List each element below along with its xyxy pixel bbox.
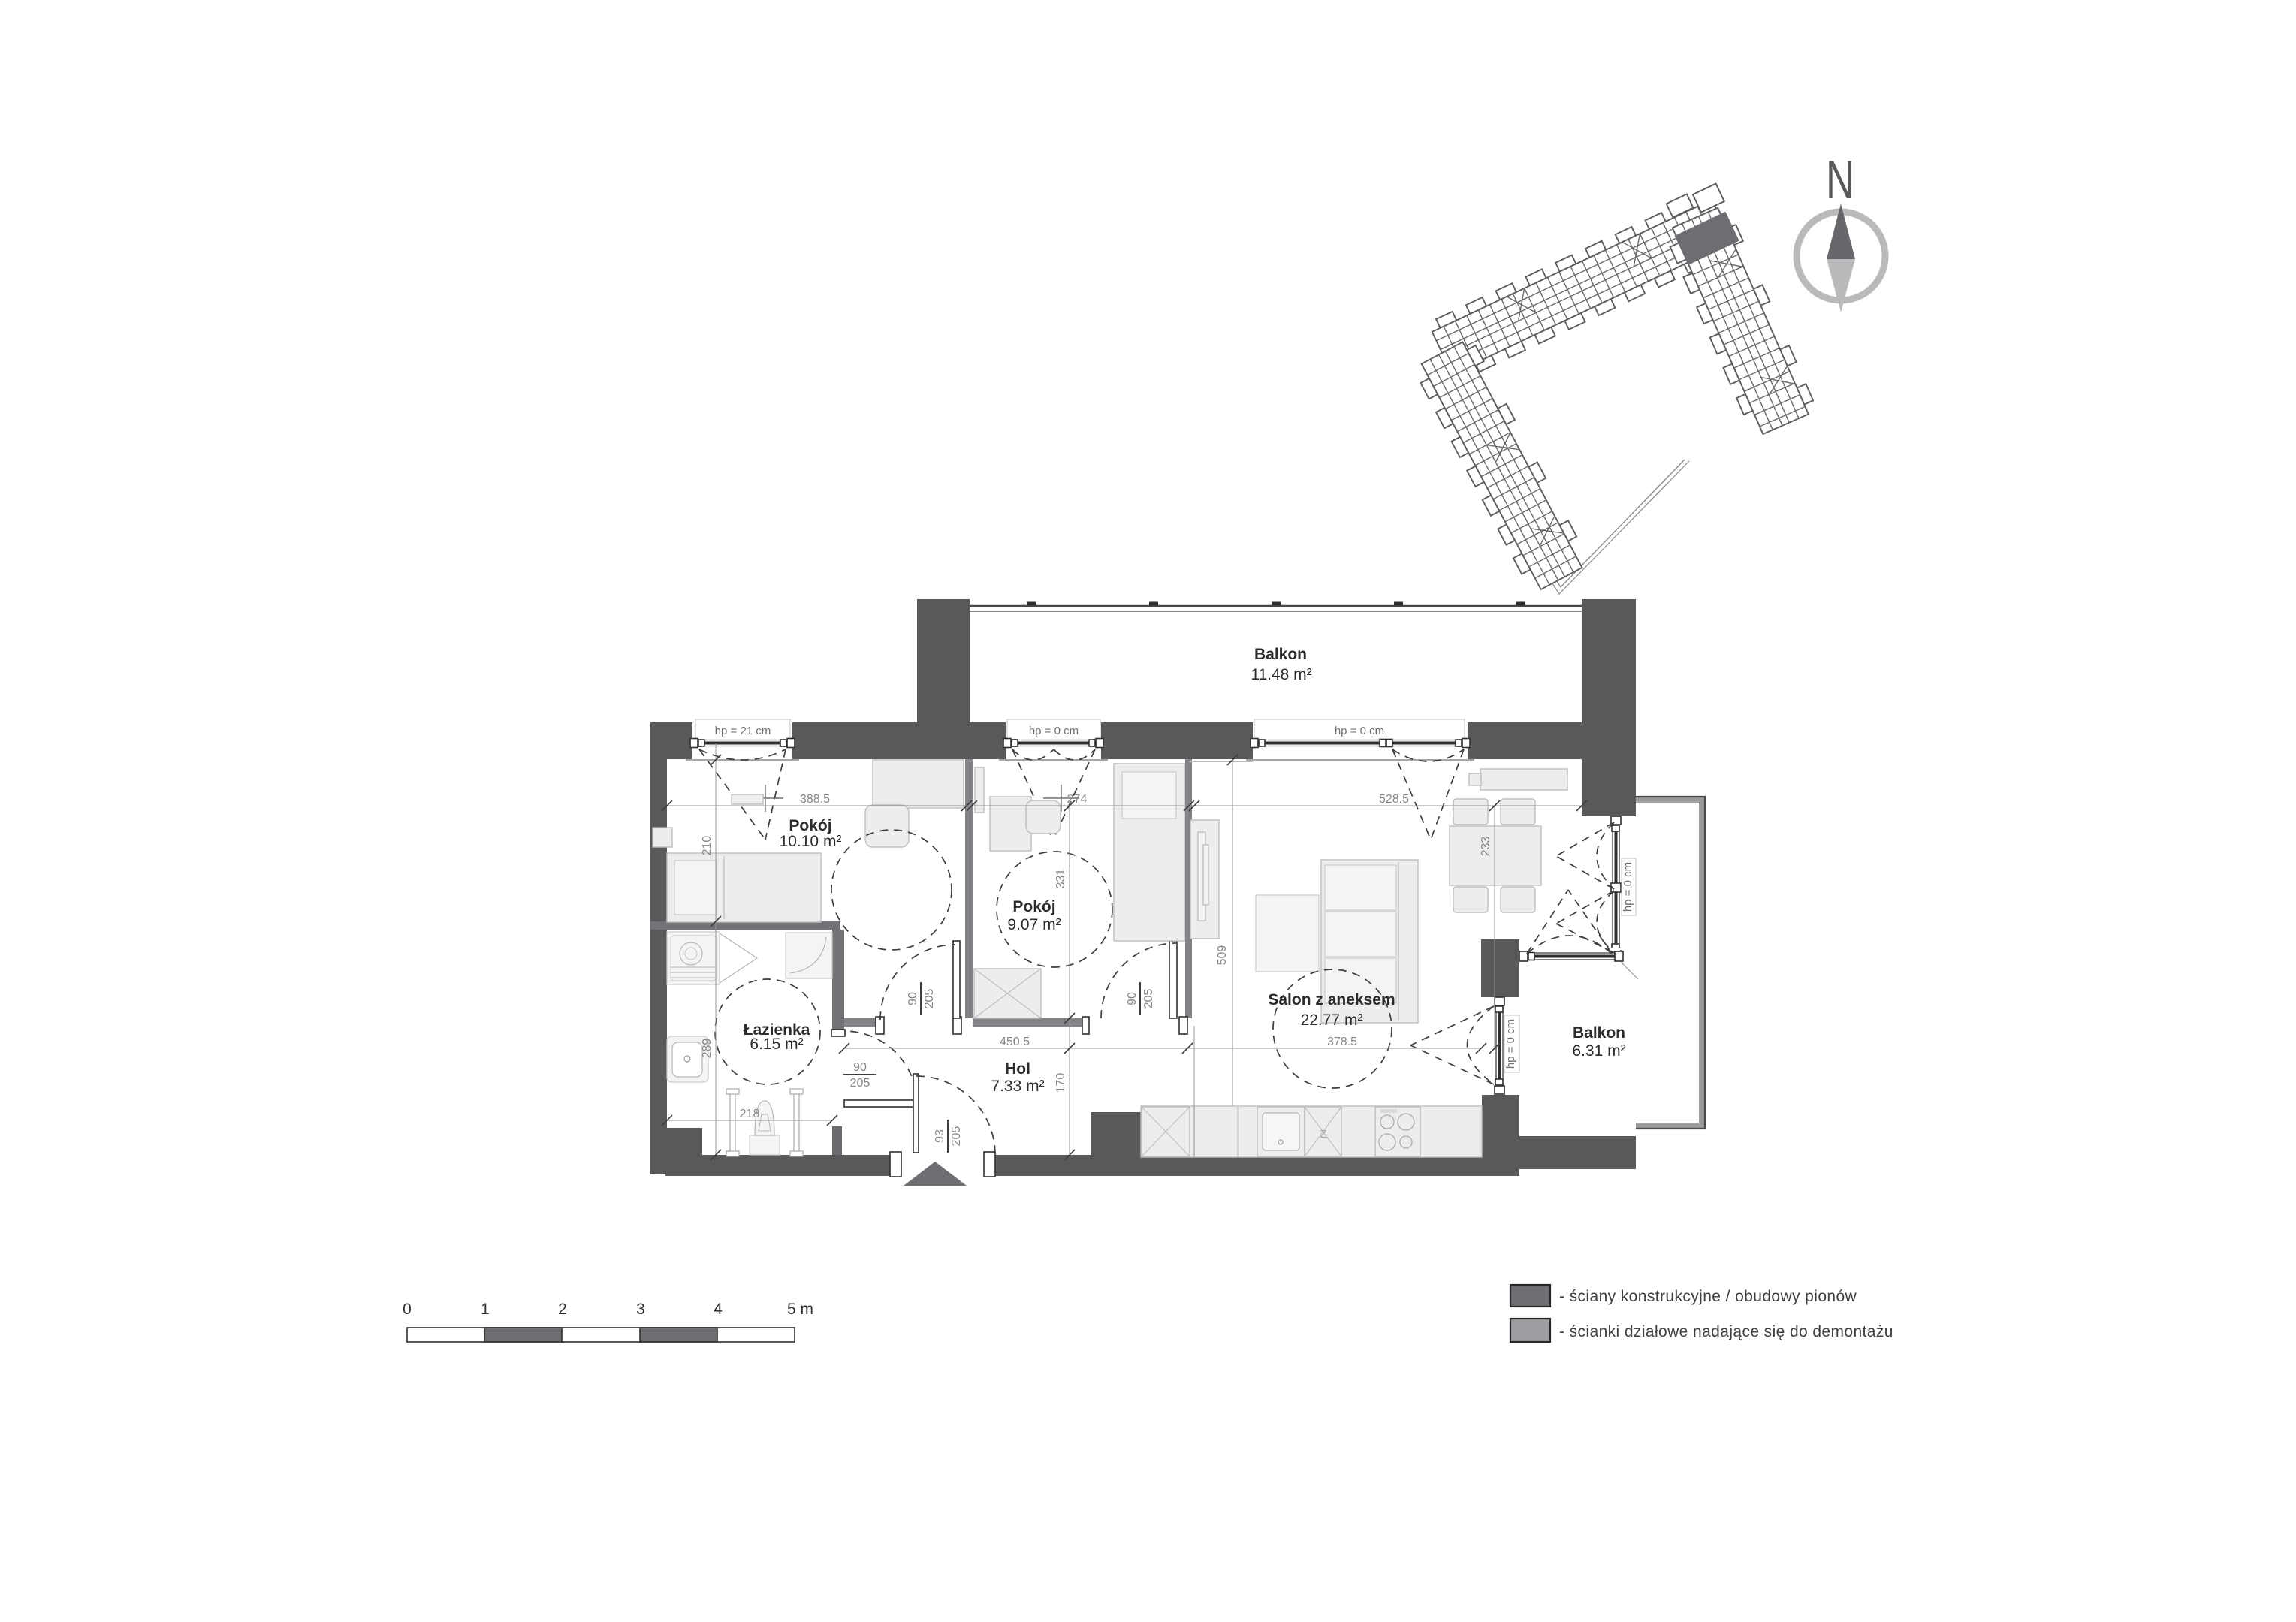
svg-text:4: 4 bbox=[714, 1301, 723, 1318]
svg-text:90: 90 bbox=[853, 1061, 867, 1074]
svg-text:7.33 m²: 7.33 m² bbox=[991, 1078, 1044, 1095]
svg-text:233: 233 bbox=[1480, 837, 1492, 857]
svg-text:170: 170 bbox=[1054, 1073, 1067, 1093]
svg-text:Hol: Hol bbox=[1005, 1060, 1030, 1078]
svg-text:Balkon: Balkon bbox=[1254, 646, 1307, 663]
svg-text:hp = 0 cm: hp = 0 cm bbox=[1335, 725, 1384, 737]
svg-text:22.77 m²: 22.77 m² bbox=[1301, 1011, 1363, 1029]
svg-text:hp = 0 cm: hp = 0 cm bbox=[1504, 1019, 1517, 1069]
svg-text:331: 331 bbox=[1054, 869, 1067, 889]
svg-text:Salon z aneksem: Salon z aneksem bbox=[1268, 991, 1395, 1008]
svg-text:- ściany konstrukcyjne / obudo: - ściany konstrukcyjne / obudowy pionów bbox=[1559, 1288, 1857, 1305]
svg-text:1: 1 bbox=[481, 1301, 490, 1318]
svg-text:hp = 0 cm: hp = 0 cm bbox=[1622, 862, 1634, 912]
svg-text:509: 509 bbox=[1216, 945, 1229, 966]
svg-text:Pokój: Pokój bbox=[789, 817, 831, 834]
svg-text:5 m: 5 m bbox=[787, 1301, 813, 1318]
svg-text:289: 289 bbox=[701, 1039, 714, 1059]
svg-text:hp = 21 cm: hp = 21 cm bbox=[715, 725, 771, 737]
svg-text:205: 205 bbox=[850, 1077, 870, 1090]
svg-text:378.5: 378.5 bbox=[1327, 1036, 1357, 1048]
svg-text:528.5: 528.5 bbox=[1379, 793, 1409, 806]
svg-text:- ścianki działowe nadające si: - ścianki działowe nadające się do demon… bbox=[1559, 1323, 1893, 1340]
svg-text:Z: Z bbox=[1320, 1128, 1326, 1141]
svg-text:0: 0 bbox=[403, 1301, 412, 1318]
svg-text:205: 205 bbox=[923, 989, 936, 1009]
svg-text:93: 93 bbox=[934, 1129, 946, 1143]
svg-text:90: 90 bbox=[907, 992, 919, 1005]
svg-text:10.10 m²: 10.10 m² bbox=[780, 833, 842, 850]
svg-text:90: 90 bbox=[1126, 992, 1139, 1005]
svg-text:11.48 m²: 11.48 m² bbox=[1251, 666, 1311, 683]
svg-text:274: 274 bbox=[1067, 793, 1088, 806]
svg-text:388.5: 388.5 bbox=[800, 793, 830, 806]
svg-text:218: 218 bbox=[740, 1108, 760, 1120]
svg-text:2: 2 bbox=[558, 1301, 567, 1318]
svg-text:205: 205 bbox=[1142, 989, 1155, 1009]
svg-text:3: 3 bbox=[636, 1301, 645, 1318]
svg-text:210: 210 bbox=[701, 836, 714, 856]
svg-text:hp = 0 cm: hp = 0 cm bbox=[1029, 725, 1079, 737]
svg-text:9.07 m²: 9.07 m² bbox=[1007, 916, 1061, 933]
svg-text:Balkon: Balkon bbox=[1573, 1024, 1625, 1042]
svg-text:6.15 m²: 6.15 m² bbox=[750, 1036, 803, 1053]
svg-text:Pokój: Pokój bbox=[1012, 898, 1055, 915]
svg-text:205: 205 bbox=[950, 1126, 963, 1147]
svg-text:450.5: 450.5 bbox=[1000, 1036, 1030, 1048]
svg-text:N: N bbox=[1826, 150, 1854, 210]
svg-text:6.31 m²: 6.31 m² bbox=[1572, 1042, 1625, 1060]
